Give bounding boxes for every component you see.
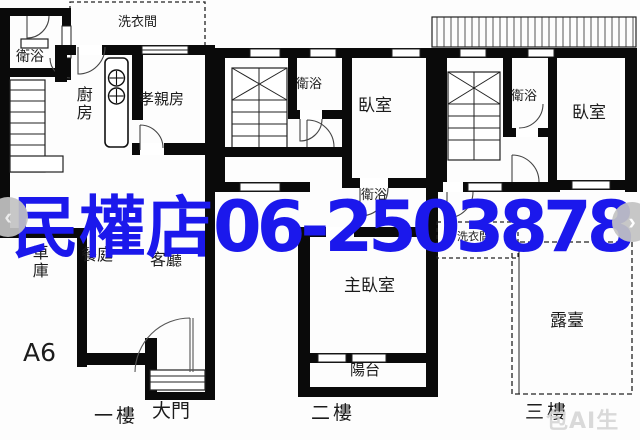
- floor-plan-drawing: [0, 0, 640, 440]
- room-label-bath-f1: 衛浴: [16, 50, 44, 65]
- unit-label: A6: [23, 340, 56, 366]
- room-label-garage: 車庫: [30, 244, 47, 280]
- door-arc: [447, 192, 473, 218]
- window: [240, 183, 280, 191]
- room-label-bath-lower-f2: 衛浴: [361, 189, 387, 203]
- window: [572, 181, 610, 189]
- room-label-kitchen: 廚房: [74, 86, 91, 122]
- toilet-icon: [21, 39, 48, 48]
- door-arc: [27, 16, 49, 38]
- room-label-bedroom-f2: 臥室: [358, 98, 392, 116]
- room-label-bath-f3: 衛浴: [511, 90, 537, 104]
- door-arc: [512, 155, 539, 182]
- chevron-left-icon: ‹: [4, 204, 11, 230]
- door-arc: [519, 104, 543, 128]
- room-label-bedroom-f3: 臥室: [572, 105, 606, 123]
- stairs-icon: [448, 72, 500, 160]
- entry-steps: [150, 370, 205, 390]
- room-label-terrace: 露臺: [550, 313, 584, 331]
- stairs-icon: [232, 68, 287, 150]
- stairs-icon: [10, 80, 63, 172]
- floor-label-2: 二樓: [311, 404, 355, 424]
- room-label-balcony: 陽台: [350, 363, 380, 379]
- roof-hatch: [432, 17, 636, 47]
- floorplan-photo: 洗衣間 衛浴 廚房 孝親房 餐庭 客廳 車庫 A6 大門 一樓 衛浴 臥室 衛浴…: [0, 0, 640, 440]
- label-main-door: 大門: [152, 402, 190, 422]
- window: [250, 49, 280, 57]
- floor-label-3: 三樓: [525, 403, 569, 423]
- window: [318, 354, 346, 362]
- floor-label-1: 一樓: [94, 407, 138, 427]
- stove-icon: [105, 58, 128, 147]
- window: [392, 49, 420, 57]
- window: [528, 49, 554, 57]
- room-label-parents-room: 孝親房: [139, 92, 184, 108]
- room-label-master-bedroom: 主臥室: [344, 278, 395, 296]
- door-arc: [307, 120, 334, 147]
- room-label-bath-upper-f2: 衛浴: [296, 78, 322, 92]
- floor2-plan: [213, 48, 438, 397]
- room-label-dining: 餐庭: [81, 247, 113, 264]
- floor3-plan: [432, 17, 637, 394]
- window: [460, 49, 486, 57]
- window: [468, 183, 502, 191]
- room-label-laundry-f1: 洗衣間: [118, 16, 157, 30]
- window: [310, 49, 336, 57]
- room-label-laundry-f3: 洗衣間: [457, 231, 490, 243]
- room-label-living: 客廳: [150, 252, 182, 269]
- chevron-right-icon: ›: [628, 209, 635, 235]
